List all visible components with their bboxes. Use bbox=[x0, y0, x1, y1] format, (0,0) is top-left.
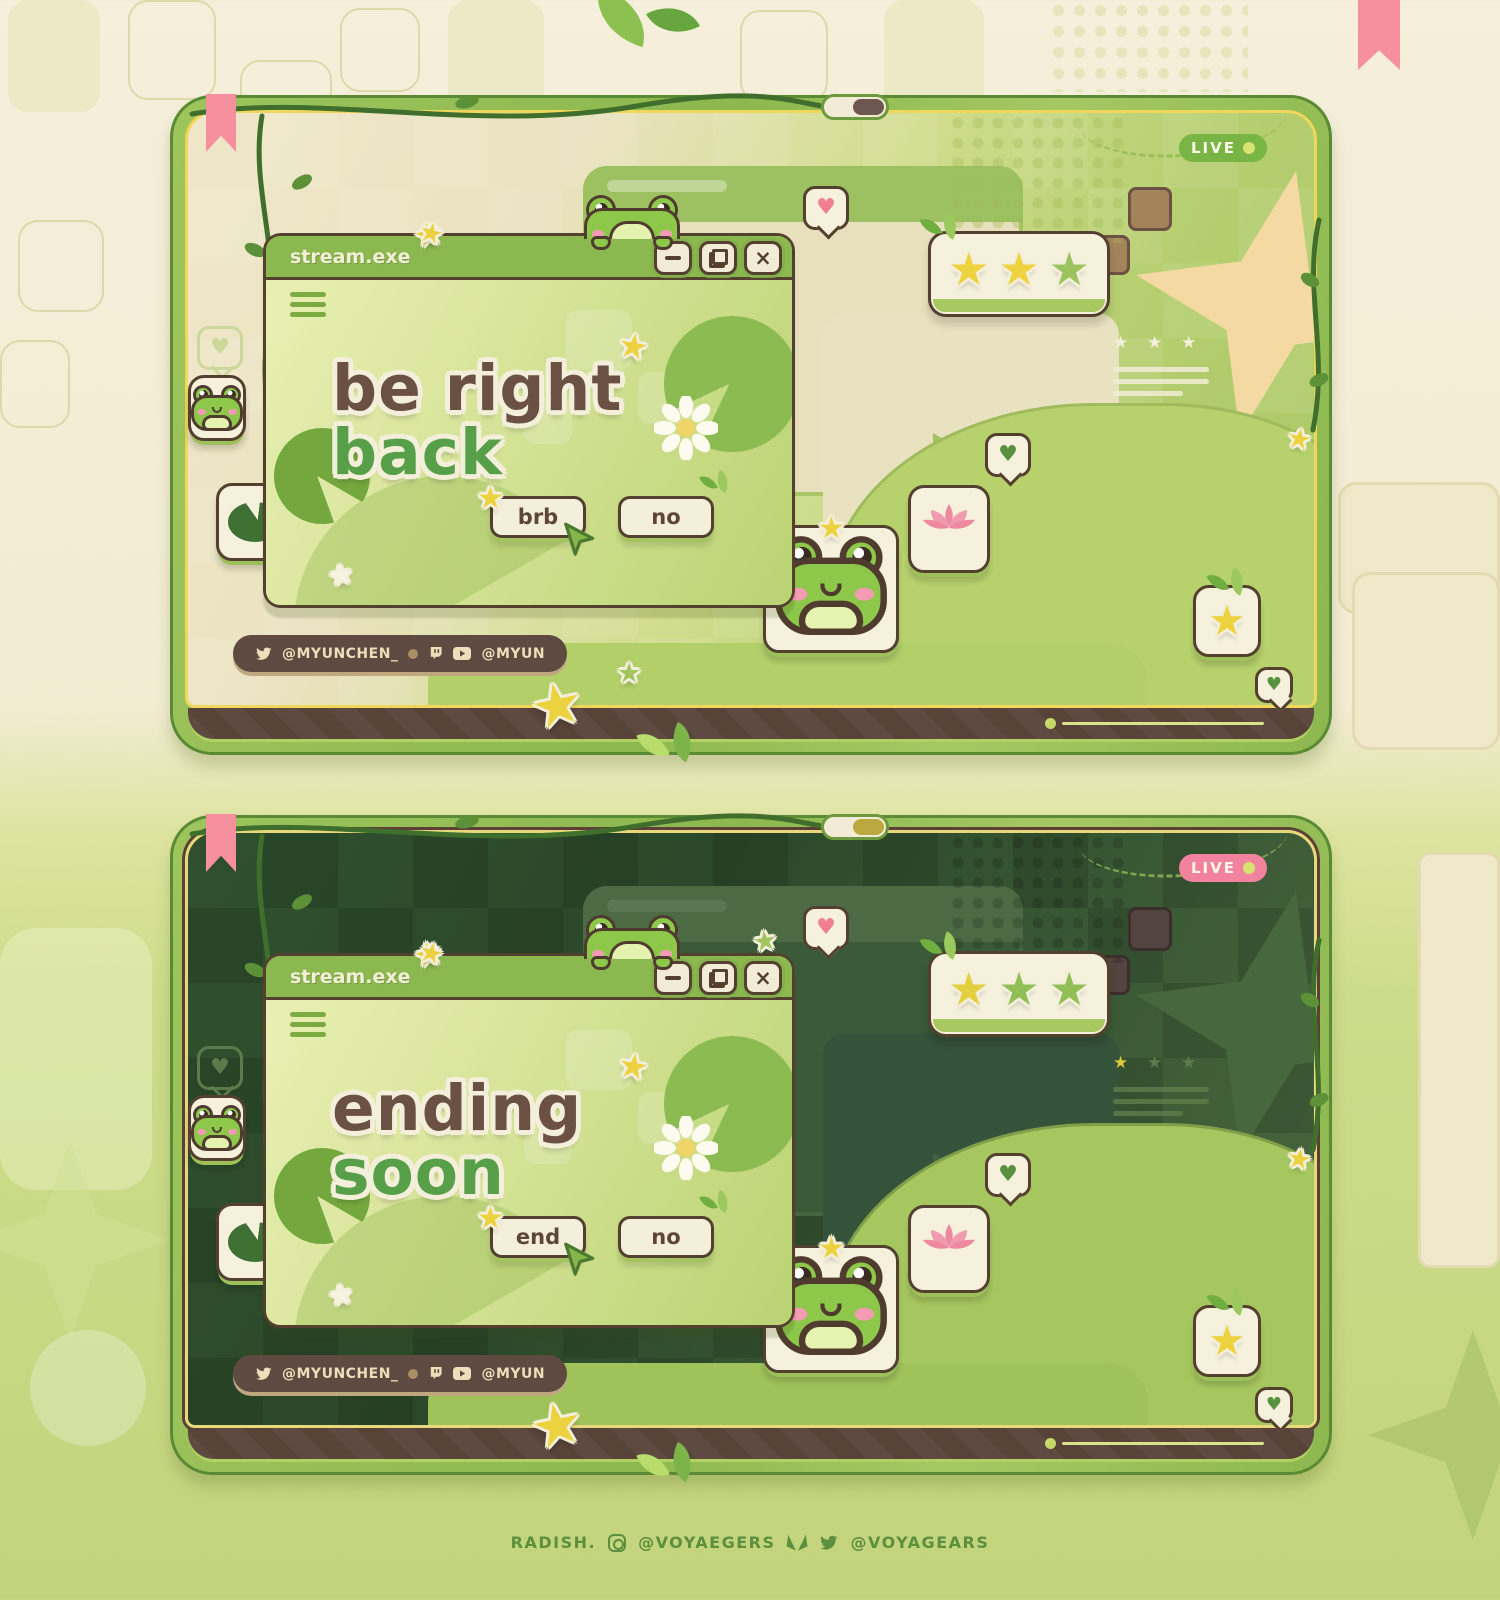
window-title: stream.exe bbox=[290, 246, 411, 268]
twitch-icon bbox=[428, 1366, 443, 1381]
heart-bubble-ghost: ♥ bbox=[197, 1046, 243, 1090]
close-button[interactable]: × bbox=[744, 241, 782, 275]
cursor-icon bbox=[561, 1241, 599, 1279]
star-icon: ★ bbox=[1208, 1320, 1246, 1362]
bg-column-shape bbox=[1418, 852, 1500, 1268]
bg-window-shape bbox=[1352, 572, 1500, 750]
star-sticker-card: ★ bbox=[1193, 585, 1261, 657]
confirm-button-label: brb bbox=[518, 505, 558, 529]
star-icon: ★ bbox=[327, 560, 356, 591]
instagram-handle: @VOYAEGERS bbox=[638, 1533, 775, 1552]
live-badge: LIVE bbox=[1179, 854, 1267, 882]
daisy-flower bbox=[654, 1116, 718, 1180]
star-icon: ★ bbox=[477, 484, 504, 514]
star-icon: ★ bbox=[751, 926, 779, 956]
decline-button[interactable]: no bbox=[618, 496, 714, 538]
live-dot bbox=[1243, 142, 1255, 154]
star-icon: ★ bbox=[818, 1234, 845, 1264]
progress-dot bbox=[1045, 718, 1056, 729]
separator-dot bbox=[408, 649, 418, 659]
star-icon: ★ bbox=[1147, 333, 1162, 353]
heading-line1: be right bbox=[332, 352, 623, 425]
decline-button-label: no bbox=[651, 505, 680, 529]
star-icon: ★ bbox=[998, 966, 1039, 1012]
panel-bottom-bar bbox=[188, 708, 1314, 739]
text-line-decoration bbox=[1113, 391, 1183, 396]
star-icon: ★ bbox=[617, 660, 641, 687]
credit-name: RADISH. bbox=[511, 1533, 596, 1552]
heart-bubble: ♥ bbox=[803, 906, 849, 950]
leaf-icon bbox=[641, 726, 697, 760]
twitch-icon bbox=[428, 646, 443, 661]
bg-blob bbox=[0, 928, 152, 1190]
twitter-handle: @MYUNCHEN_ bbox=[282, 1366, 398, 1382]
peeking-frog bbox=[584, 195, 680, 239]
star-icon: ★ bbox=[1208, 600, 1246, 642]
bg-tile bbox=[340, 8, 420, 92]
restore-button[interactable] bbox=[699, 961, 737, 995]
cursor-icon bbox=[561, 521, 599, 559]
decline-button-label: no bbox=[651, 1225, 680, 1249]
frog-sticker-card bbox=[188, 375, 246, 441]
star-icon: ★ bbox=[1285, 1144, 1314, 1175]
lotus-sticker-card bbox=[908, 485, 990, 573]
text-line-decoration bbox=[1113, 367, 1209, 372]
ending-soon-overlay-panel: ★ ★ ★ LIVE bbox=[170, 815, 1332, 1475]
artboard: ★ ★ ★ LIVE bbox=[0, 0, 1500, 1600]
star-icon: ★ bbox=[1147, 1053, 1162, 1073]
heart-icon: ♥ bbox=[210, 337, 230, 359]
window-titlebar[interactable]: stream.exe × bbox=[266, 956, 792, 1000]
twitter-handle: @MYUNCHEN_ bbox=[282, 646, 398, 662]
window-body: ★ be right back ★ brb no bbox=[266, 280, 792, 605]
panel-bottom-bar bbox=[188, 1428, 1314, 1459]
heart-icon: ♥ bbox=[816, 917, 836, 939]
toggle-pill[interactable] bbox=[821, 814, 889, 840]
star-icon: ★ bbox=[1285, 424, 1314, 455]
text-line-decoration bbox=[1113, 1087, 1209, 1092]
leaf-icon bbox=[702, 1192, 732, 1212]
heart-icon: ♥ bbox=[998, 444, 1018, 466]
leaf-icon bbox=[587, 0, 655, 47]
star-icon: ★ bbox=[615, 1048, 651, 1087]
twitter-icon bbox=[255, 647, 272, 661]
leaf-icon bbox=[923, 934, 959, 958]
bg-tile bbox=[8, 0, 100, 112]
star-sticker-card: ★ bbox=[1193, 1305, 1261, 1377]
live-dot bbox=[1243, 862, 1255, 874]
social-bar[interactable]: @MYUNCHEN_ @MYUN bbox=[233, 635, 567, 672]
bg-tile bbox=[18, 220, 104, 312]
bg-tile bbox=[128, 0, 216, 100]
heart-icon: ♥ bbox=[1266, 1396, 1282, 1414]
confirm-button-label: end bbox=[516, 1225, 560, 1249]
star-icon: ★ bbox=[1049, 246, 1090, 292]
close-button[interactable]: × bbox=[744, 961, 782, 995]
restore-icon bbox=[712, 972, 725, 985]
bookmark-ribbon bbox=[1358, 0, 1400, 70]
youtube-icon bbox=[453, 1367, 471, 1380]
footer-credit: RADISH. @VOYAEGERS @VOYAGEARS bbox=[0, 1533, 1500, 1552]
daisy-flower bbox=[654, 396, 718, 460]
peeking-frog bbox=[584, 915, 680, 959]
minimize-icon bbox=[665, 976, 681, 980]
instagram-icon bbox=[608, 1534, 626, 1552]
heart-bubble-ghost: ♥ bbox=[197, 326, 243, 370]
restore-button[interactable] bbox=[699, 241, 737, 275]
star-icon: ★ bbox=[1113, 1053, 1128, 1073]
frog-sticker-card bbox=[188, 1095, 246, 1161]
leaf-icon bbox=[1210, 570, 1246, 594]
window-body: ★ ending soon ★ end no bbox=[266, 1000, 792, 1325]
stream-window: ★ stream.exe × bbox=[263, 953, 795, 1328]
star-icon: ★ bbox=[1049, 966, 1090, 1012]
twitter-handle: @VOYAGEARS bbox=[850, 1533, 989, 1552]
youtube-handle: @MYUN bbox=[481, 1366, 545, 1382]
progress-dot bbox=[1045, 1438, 1056, 1449]
star-icon: ★ bbox=[1181, 333, 1196, 353]
youtube-handle: @MYUN bbox=[481, 646, 545, 662]
toggle-knob bbox=[853, 819, 884, 835]
social-bar[interactable]: @MYUNCHEN_ @MYUN bbox=[233, 1355, 567, 1392]
heart-bubble: ♥ bbox=[1255, 1387, 1293, 1423]
close-icon: × bbox=[754, 968, 772, 989]
minimize-icon bbox=[665, 256, 681, 260]
frog-face bbox=[191, 385, 243, 431]
separator-dot bbox=[408, 1369, 418, 1379]
heart-icon: ♥ bbox=[998, 1164, 1018, 1186]
bg-tile bbox=[740, 10, 828, 102]
heading-line2: soon bbox=[332, 1136, 505, 1209]
star-icon: ★ bbox=[327, 1280, 356, 1311]
heart-bubble: ♥ bbox=[1255, 667, 1293, 703]
star-icon: ★ bbox=[948, 246, 989, 292]
live-label: LIVE bbox=[1191, 859, 1236, 877]
leaf-icon bbox=[702, 472, 732, 492]
window-title: stream.exe bbox=[290, 966, 411, 988]
halftone-dots bbox=[1048, 0, 1248, 92]
confirm-button[interactable]: ★ end bbox=[490, 1216, 586, 1258]
progress-line bbox=[1062, 722, 1264, 725]
star-icon: ★ bbox=[818, 514, 845, 544]
close-icon: × bbox=[754, 248, 772, 269]
leaf-icon bbox=[646, 0, 700, 46]
bg-tile bbox=[0, 340, 70, 428]
menu-icon[interactable] bbox=[290, 1012, 326, 1042]
pixel-square bbox=[1128, 907, 1172, 951]
star-icon: ★ bbox=[1181, 1053, 1196, 1073]
star-icon: ★ bbox=[1113, 333, 1128, 353]
menu-icon[interactable] bbox=[290, 292, 326, 322]
pixel-square bbox=[1128, 187, 1172, 231]
text-line-decoration bbox=[1113, 1111, 1183, 1116]
live-label: LIVE bbox=[1191, 139, 1236, 157]
star-icon: ★ bbox=[477, 1204, 504, 1234]
toggle-pill[interactable] bbox=[821, 94, 889, 120]
lotus-sticker-card bbox=[908, 1205, 990, 1293]
star-icon: ★ bbox=[998, 246, 1039, 292]
heading-line1: ending bbox=[332, 1072, 582, 1145]
youtube-icon bbox=[453, 647, 471, 660]
frog-face bbox=[191, 1105, 243, 1151]
text-line-decoration bbox=[1113, 379, 1209, 384]
progress-line bbox=[1062, 1442, 1264, 1445]
bg-star-shape bbox=[1368, 1330, 1500, 1540]
live-badge: LIVE bbox=[1179, 134, 1267, 162]
brb-overlay-panel: ★ ★ ★ LIVE bbox=[170, 95, 1332, 755]
heart-bubble: ♥ bbox=[985, 433, 1031, 477]
lotus-icon bbox=[921, 502, 977, 542]
butterfly-icon bbox=[787, 1535, 807, 1551]
confirm-button[interactable]: ★ brb bbox=[490, 496, 586, 538]
heading-line2: back bbox=[332, 416, 503, 489]
stream-window: ★ stream.exe × bbox=[263, 233, 795, 608]
star-icon: ★ bbox=[615, 328, 651, 367]
window-titlebar[interactable]: stream.exe × bbox=[266, 236, 792, 280]
star-rating-card: ★ ★ ★ bbox=[928, 231, 1110, 317]
leaf-icon bbox=[641, 1446, 697, 1480]
decline-button[interactable]: no bbox=[618, 1216, 714, 1258]
toggle-knob bbox=[853, 99, 884, 115]
lotus-icon bbox=[921, 1222, 977, 1262]
heart-icon: ♥ bbox=[1266, 676, 1282, 694]
heart-bubble: ♥ bbox=[803, 186, 849, 230]
twitter-icon bbox=[819, 1535, 838, 1551]
twitter-icon bbox=[255, 1367, 272, 1381]
text-line-decoration bbox=[1113, 1099, 1209, 1104]
star-icon: ★ bbox=[948, 966, 989, 1012]
leaf-icon bbox=[1210, 1290, 1246, 1314]
restore-icon bbox=[712, 252, 725, 265]
mini-stars-decoration: ★ ★ ★ bbox=[1113, 333, 1263, 403]
heart-bubble: ♥ bbox=[985, 1153, 1031, 1197]
bg-blob bbox=[30, 1330, 146, 1446]
star-rating-card: ★ ★ ★ bbox=[928, 951, 1110, 1037]
heart-icon: ♥ bbox=[210, 1057, 230, 1079]
leaf-icon bbox=[923, 214, 959, 238]
mini-stars-decoration: ★ ★ ★ bbox=[1113, 1053, 1263, 1123]
heart-icon: ♥ bbox=[816, 197, 836, 219]
